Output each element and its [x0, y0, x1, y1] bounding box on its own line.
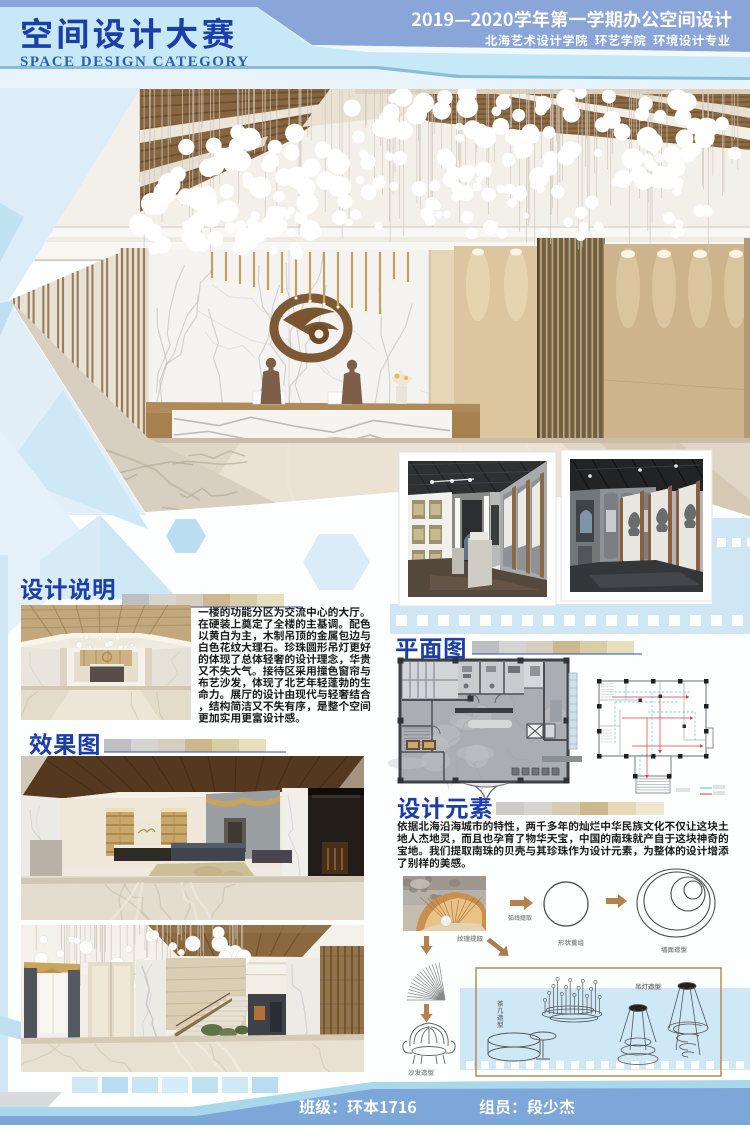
svg-text:SPACE DESIGN CATEGORY: SPACE DESIGN CATEGORY — [20, 54, 250, 70]
